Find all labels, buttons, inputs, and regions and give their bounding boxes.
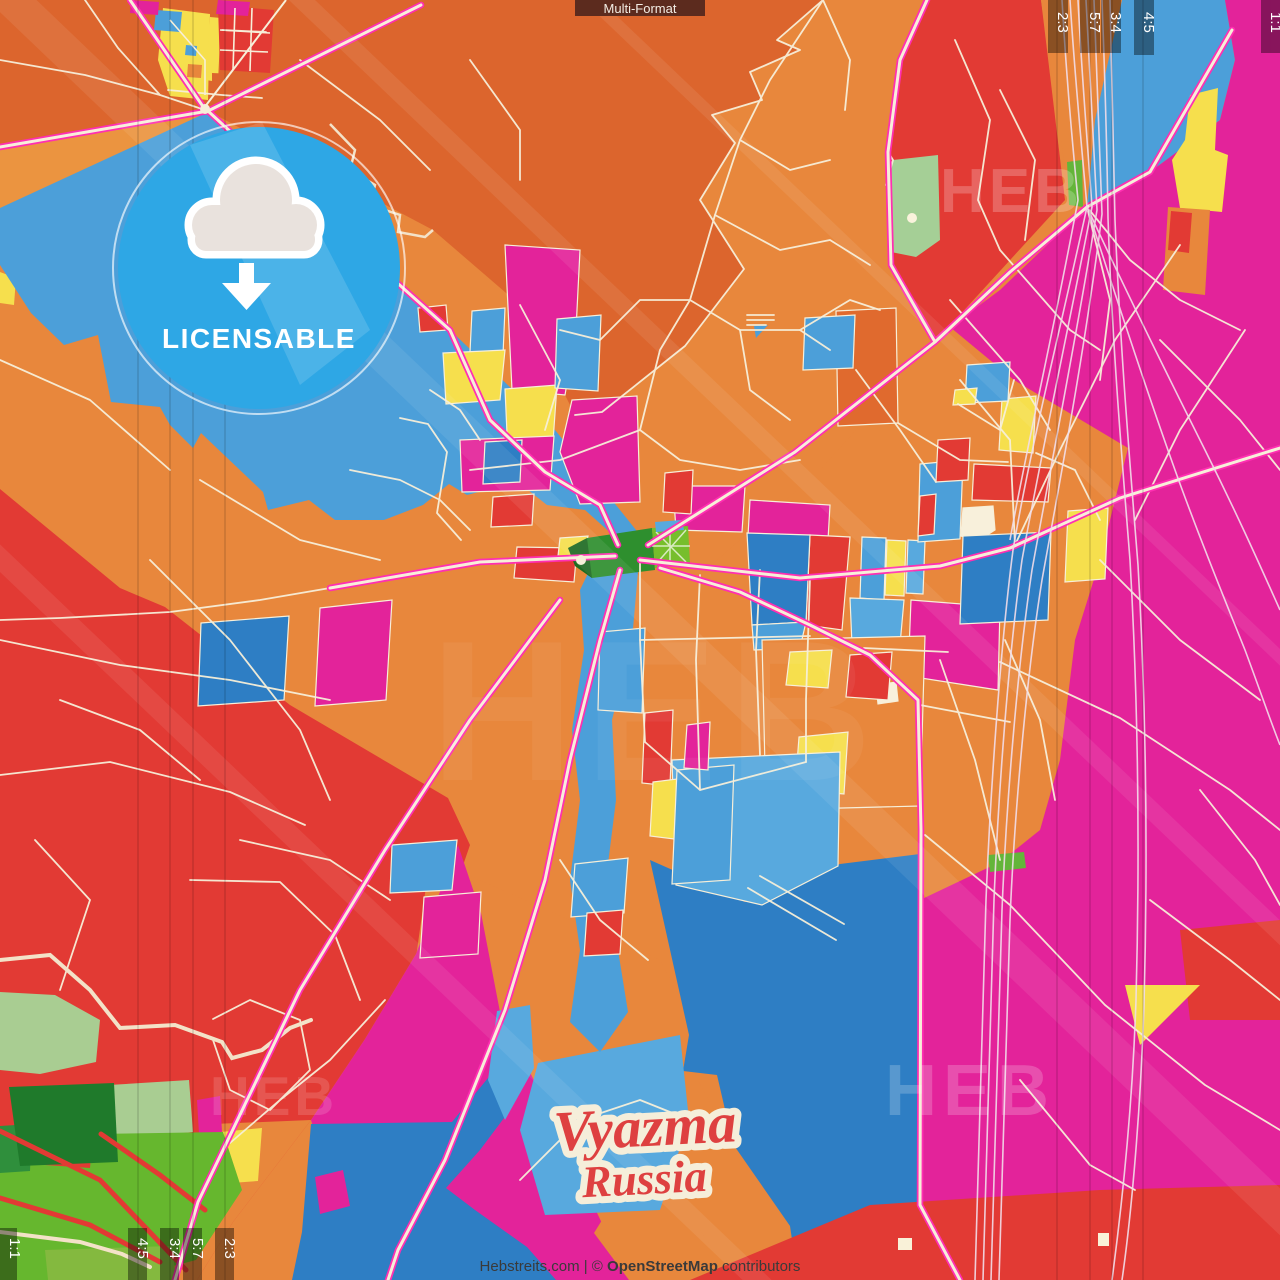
- svg-text:Hebstreits.com | © OpenStreetM: Hebstreits.com | © OpenStreetMap contrib…: [480, 1258, 801, 1275]
- svg-text:Vyazma: Vyazma: [552, 1091, 738, 1163]
- svg-text:1:1: 1:1: [1267, 12, 1280, 33]
- svg-text:1:1: 1:1: [6, 1238, 23, 1259]
- svg-text:2:3: 2:3: [1054, 12, 1071, 33]
- svg-text:HEB: HEB: [430, 600, 882, 823]
- svg-text:2:3: 2:3: [221, 1238, 238, 1259]
- svg-text:3:4: 3:4: [1107, 12, 1124, 33]
- svg-text:LICENSABLE: LICENSABLE: [162, 323, 356, 354]
- svg-text:Russia: Russia: [579, 1151, 708, 1208]
- svg-text:3:4: 3:4: [166, 1238, 183, 1259]
- svg-text:Multi-Format: Multi-Format: [604, 1, 677, 16]
- svg-text:5:7: 5:7: [1086, 12, 1103, 33]
- svg-text:4:5: 4:5: [1140, 12, 1157, 33]
- svg-text:5:7: 5:7: [189, 1238, 206, 1259]
- svg-text:4:5: 4:5: [134, 1238, 151, 1259]
- svg-text:HEB: HEB: [885, 1051, 1055, 1131]
- svg-text:HEB: HEB: [940, 157, 1083, 226]
- svg-text:HEB: HEB: [210, 1065, 338, 1127]
